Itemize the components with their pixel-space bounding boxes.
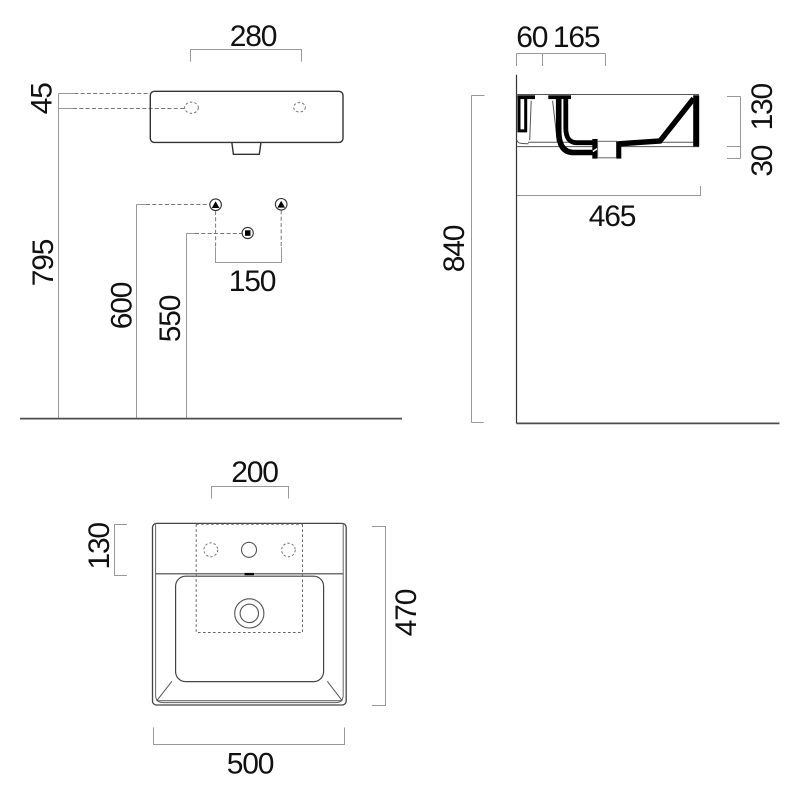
svg-text:795: 795 xyxy=(27,239,60,286)
svg-text:600: 600 xyxy=(106,282,139,329)
svg-text:840: 840 xyxy=(438,225,471,272)
svg-text:150: 150 xyxy=(229,265,276,298)
svg-text:130: 130 xyxy=(83,523,116,570)
svg-text:500: 500 xyxy=(227,748,274,781)
svg-text:200: 200 xyxy=(231,456,278,489)
svg-text:60: 60 xyxy=(516,21,547,54)
svg-text:45: 45 xyxy=(26,83,59,114)
svg-text:130: 130 xyxy=(746,83,779,130)
svg-text:465: 465 xyxy=(589,200,636,233)
svg-text:470: 470 xyxy=(390,589,423,636)
svg-text:30: 30 xyxy=(746,145,779,176)
svg-text:550: 550 xyxy=(154,295,187,342)
svg-text:165: 165 xyxy=(553,21,600,54)
svg-text:280: 280 xyxy=(230,20,277,53)
